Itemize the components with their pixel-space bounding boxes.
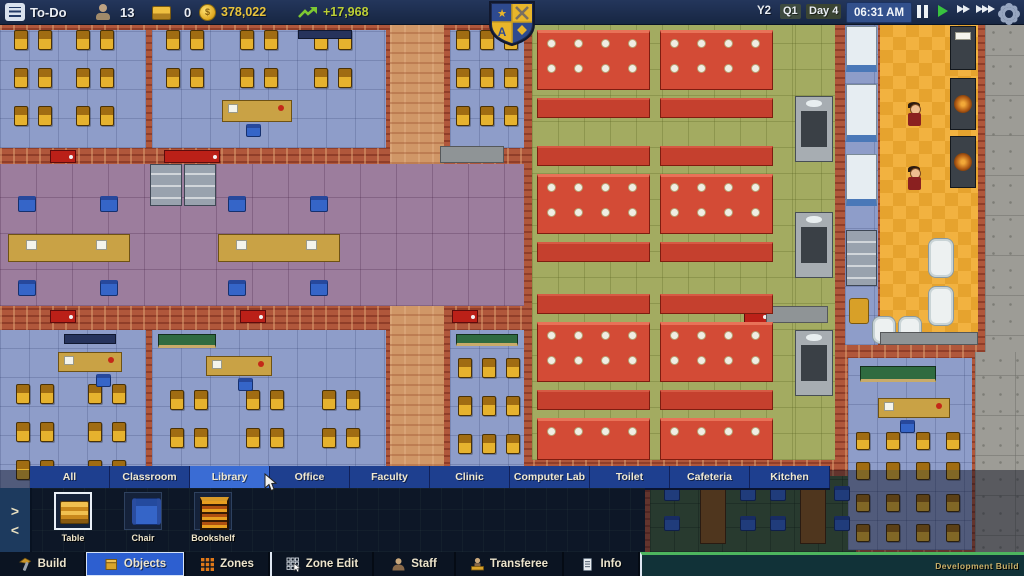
students-icon (96, 4, 110, 20)
map-plate (601, 427, 610, 436)
map-bench (537, 98, 650, 118)
object-category-tabs: AllClassroomLibraryOfficeFacultyClinicCo… (30, 466, 830, 490)
map-plate (697, 208, 706, 217)
category-tab-office[interactable]: Office (270, 466, 350, 488)
object-palette-panel: > < TableChairBookshelf (0, 488, 645, 552)
map-plate (574, 356, 583, 365)
table-icon (54, 492, 92, 530)
map-paper (884, 402, 894, 411)
map-desk (458, 434, 472, 454)
map-desk (322, 390, 336, 410)
map-plate (574, 427, 583, 436)
map-floor-tan (390, 24, 444, 164)
map-desk (194, 390, 208, 410)
map-desk (264, 30, 278, 50)
map-desk (504, 106, 518, 126)
todo-menu-icon[interactable] (5, 3, 25, 21)
map-apple (258, 361, 264, 367)
category-tab-clinic[interactable]: Clinic (430, 466, 510, 488)
map-ring (954, 95, 972, 113)
map-plate (628, 183, 637, 192)
map-bench (537, 390, 650, 410)
map-bin (849, 298, 869, 324)
map-plate (601, 331, 610, 340)
map-caftable (660, 418, 773, 460)
staff-icon (391, 557, 406, 572)
category-tab-kitchen[interactable]: Kitchen (750, 466, 830, 488)
map-apple (108, 357, 114, 363)
map-board-g (158, 334, 216, 348)
map-bench (660, 98, 773, 118)
map-machine (795, 212, 833, 278)
map-plate (697, 183, 706, 192)
map-desk (38, 30, 52, 50)
zones-grid-icon (200, 557, 215, 572)
palette-item-bookshelf[interactable]: Bookshelf (182, 492, 244, 552)
map-plate (724, 427, 733, 436)
map-paper (955, 32, 971, 40)
map-plate (751, 39, 760, 48)
map-desk (506, 396, 520, 416)
map-plate (628, 64, 637, 73)
year-label: Y2 (757, 6, 771, 18)
pause-button[interactable] (917, 5, 928, 18)
settings-gear-icon[interactable] (1002, 7, 1016, 21)
map-desk (14, 30, 28, 50)
map-plate (547, 39, 556, 48)
map-desk (76, 106, 90, 126)
bottom-tab-label: Transferee (490, 558, 548, 570)
objects-box-icon (104, 557, 119, 572)
map-plate (574, 183, 583, 192)
play-button[interactable] (938, 5, 948, 17)
map-machine (795, 96, 833, 162)
map-cook (906, 102, 923, 128)
map-chairb (100, 196, 118, 212)
category-tab-cafeteria[interactable]: Cafeteria (670, 466, 750, 488)
day-label: Day 4 (806, 4, 841, 19)
map-desk (16, 384, 30, 404)
map-apple (936, 403, 942, 409)
palette-item-label: Table (62, 533, 85, 543)
map-desk (240, 30, 254, 50)
bottom-tab-label: Build (38, 558, 67, 570)
palette-prev-icon[interactable]: < (11, 523, 19, 537)
map-desk (76, 68, 90, 88)
bottom-tab-objects[interactable]: Objects (86, 552, 186, 576)
students-count: 13 (120, 6, 134, 19)
map-desk (456, 30, 470, 50)
palette-nav: > < (0, 488, 32, 552)
map-plate (574, 64, 583, 73)
map-desk (166, 30, 180, 50)
palette-item-label: Bookshelf (191, 533, 235, 543)
map-desk (482, 396, 496, 416)
info-icon (580, 557, 595, 572)
map-desk (480, 106, 494, 126)
map-desk (346, 390, 360, 410)
category-tab-computer-lab[interactable]: Computer Lab (510, 466, 590, 488)
funds-value: 378,022 (221, 6, 266, 19)
map-plate (670, 427, 679, 436)
map-desk (190, 68, 204, 88)
map-desk (916, 432, 930, 450)
map-plate (601, 64, 610, 73)
map-plate (724, 331, 733, 340)
map-plate (547, 356, 556, 365)
map-chairb (900, 420, 915, 433)
map-desk (112, 422, 126, 442)
map-plate (697, 39, 706, 48)
map-fridge (846, 154, 877, 206)
map-plate (628, 427, 637, 436)
map-desk (88, 422, 102, 442)
map-plate (628, 39, 637, 48)
fast-forward-icon[interactable] (958, 5, 970, 13)
school-crest-icon: ★ A (486, 0, 538, 48)
map-plate (670, 183, 679, 192)
clock: 06:31 AM (846, 2, 912, 23)
dev-build-label: Development Build (935, 561, 1019, 571)
bottom-toolbar: BuildObjectsZonesZone EditStaffTransfere… (0, 552, 640, 576)
map-plate (547, 64, 556, 73)
map-desk (482, 434, 496, 454)
bottom-tab-label: Zone Edit (306, 558, 358, 570)
map-bench (537, 242, 650, 262)
zone-edit-icon (286, 557, 301, 572)
hammer-icon (18, 557, 33, 572)
palette-item-table[interactable]: Table (42, 492, 104, 552)
fastest-forward-icon[interactable] (977, 5, 995, 13)
category-tab-toilet[interactable]: Toilet (590, 466, 670, 488)
map-desk (100, 68, 114, 88)
map-plate (697, 427, 706, 436)
map-bench (660, 146, 773, 166)
map-plate (751, 64, 760, 73)
map-desk (338, 68, 352, 88)
game-screen: To-Do 13 0 $ 378,022 +17,968 Y2 Q1 Day 4… (0, 0, 1024, 576)
todo-label[interactable]: To-Do (30, 6, 67, 19)
map-fridge (846, 84, 877, 142)
map-chairb (100, 280, 118, 296)
map-desk (88, 384, 102, 404)
map-plate (724, 39, 733, 48)
map-plate (697, 356, 706, 365)
map-desk (14, 68, 28, 88)
palette-item-chair[interactable]: Chair (112, 492, 174, 552)
map-desk (100, 30, 114, 50)
map-paper (64, 356, 74, 365)
map-desk (38, 106, 52, 126)
bottom-tab-zone-edit[interactable]: Zone Edit (272, 552, 374, 576)
map-ring (954, 153, 972, 171)
category-tab-faculty[interactable]: Faculty (350, 466, 430, 488)
map-desk (112, 384, 126, 404)
map-desk (16, 422, 30, 442)
map-desk (456, 106, 470, 126)
map-plate (601, 356, 610, 365)
map-plate (724, 356, 733, 365)
map-plate (574, 331, 583, 340)
map-plate (724, 64, 733, 73)
category-tab-classroom[interactable]: Classroom (110, 466, 190, 488)
map-plate (574, 208, 583, 217)
map-chairb (18, 196, 36, 212)
map-plate (670, 356, 679, 365)
map-plate (670, 64, 679, 73)
map-desk (40, 422, 54, 442)
map-plate (601, 183, 610, 192)
map-desk (264, 68, 278, 88)
bottom-tab-label: Zones (220, 558, 254, 570)
map-stub (440, 146, 504, 163)
bottom-tab-info[interactable]: Info (564, 552, 640, 576)
map-chairb (228, 280, 246, 296)
map-chairb (18, 280, 36, 296)
map-bench (660, 294, 773, 314)
svg-text:A: A (498, 25, 507, 39)
map-chairb (246, 124, 261, 137)
map-apple (278, 105, 284, 111)
map-desk (194, 428, 208, 448)
map-plate (724, 208, 733, 217)
map-bench (537, 294, 650, 314)
map-board-g (456, 334, 518, 346)
map-plate (601, 208, 610, 217)
map-plate (547, 208, 556, 217)
map-fridge (846, 26, 877, 72)
bottom-tab-zones[interactable]: Zones (186, 552, 270, 576)
map-chairb (96, 374, 111, 387)
chair-icon (124, 492, 162, 530)
money-coin-icon: $ (199, 4, 216, 21)
bottom-tab-staff[interactable]: Staff (374, 552, 456, 576)
map-paper (236, 240, 247, 250)
cook-bd (908, 177, 921, 190)
map-chairb (310, 196, 328, 212)
palette-items: TableChairBookshelf (32, 488, 244, 552)
map-plate (751, 356, 760, 365)
map-desk (886, 432, 900, 450)
map-desk (170, 428, 184, 448)
map-chairb (228, 196, 246, 212)
map-plate (670, 208, 679, 217)
map-cab (184, 164, 216, 206)
map-desk (504, 68, 518, 88)
map-board-n (298, 30, 352, 39)
category-tab-library[interactable]: Library (190, 466, 270, 488)
map-plate (697, 64, 706, 73)
income-trend-icon (298, 6, 318, 19)
map-chairb (310, 280, 328, 296)
map-cab (150, 164, 182, 206)
map-sink (928, 286, 954, 326)
map-desk (458, 396, 472, 416)
map-desk (456, 68, 470, 88)
map-board-g (860, 366, 936, 382)
bottom-tab-label: Info (600, 558, 621, 570)
map-paper (26, 240, 37, 250)
map-desk (270, 390, 284, 410)
map-plate (628, 208, 637, 217)
map-desk (482, 358, 496, 378)
map-door (164, 150, 220, 163)
svg-text:★: ★ (497, 7, 507, 20)
mouse-cursor (263, 473, 277, 493)
bottom-tab-label: Objects (124, 558, 166, 570)
map-paper (212, 360, 222, 369)
map-desk (166, 68, 180, 88)
bottom-tab-build[interactable]: Build (0, 552, 86, 576)
map-plate (574, 39, 583, 48)
map-desk (856, 432, 870, 450)
applicants-count: 0 (184, 6, 191, 19)
map-desk (946, 432, 960, 450)
map-desk (100, 106, 114, 126)
map-plate (751, 208, 760, 217)
bookshelf-icon (194, 492, 232, 530)
map-desk (246, 428, 260, 448)
map-desk (322, 428, 336, 448)
map-desk (190, 30, 204, 50)
applicants-icon (152, 6, 171, 20)
map-door (452, 310, 478, 323)
map-plate (670, 39, 679, 48)
transferee-icon (470, 557, 485, 572)
map-stub (766, 306, 828, 323)
palette-next-icon[interactable]: > (11, 504, 19, 518)
map-bench (660, 242, 773, 262)
map-desk (270, 428, 284, 448)
map-desk (170, 390, 184, 410)
map-desk (14, 106, 28, 126)
map-desk (314, 68, 328, 88)
map-plate (628, 356, 637, 365)
bottom-tab-transferee[interactable]: Transferee (456, 552, 564, 576)
map-paper (96, 240, 107, 250)
map-door (50, 310, 76, 323)
map-cab (846, 230, 877, 286)
map-desk (458, 358, 472, 378)
map-bench (537, 146, 650, 166)
map-bench (660, 390, 773, 410)
map-plate (724, 183, 733, 192)
map-plate (751, 331, 760, 340)
map-desk (38, 68, 52, 88)
map-desk (76, 30, 90, 50)
map-desk (506, 358, 520, 378)
map-cook (906, 166, 923, 192)
map-board-n (64, 334, 116, 344)
map-plate (670, 331, 679, 340)
map-desk (480, 68, 494, 88)
map-plate (751, 427, 760, 436)
category-tab-all[interactable]: All (30, 466, 110, 488)
map-desk (240, 68, 254, 88)
map-paper (228, 104, 238, 113)
map-desk (40, 384, 54, 404)
map-plate (601, 39, 610, 48)
map-plate (547, 331, 556, 340)
map-door (50, 150, 76, 163)
bottom-tab-label: Staff (411, 558, 437, 570)
map-chairb (238, 378, 253, 391)
map-door (240, 310, 266, 323)
map-desk (246, 390, 260, 410)
map-plate (547, 183, 556, 192)
map-plate (697, 331, 706, 340)
map-caftable (537, 418, 650, 460)
map-sink (928, 238, 954, 278)
map-plate (547, 427, 556, 436)
income-value: +17,968 (323, 6, 369, 19)
map-plate (751, 183, 760, 192)
quarter-label: Q1 (780, 4, 801, 19)
map-machine (795, 330, 833, 396)
map-paper (306, 240, 317, 250)
cook-bd (908, 113, 921, 126)
dev-build-strip: Development Build (640, 552, 1024, 576)
map-plate (628, 331, 637, 340)
map-desk (346, 428, 360, 448)
map-stub (880, 332, 978, 345)
palette-item-label: Chair (131, 533, 154, 543)
map-desk (506, 434, 520, 454)
